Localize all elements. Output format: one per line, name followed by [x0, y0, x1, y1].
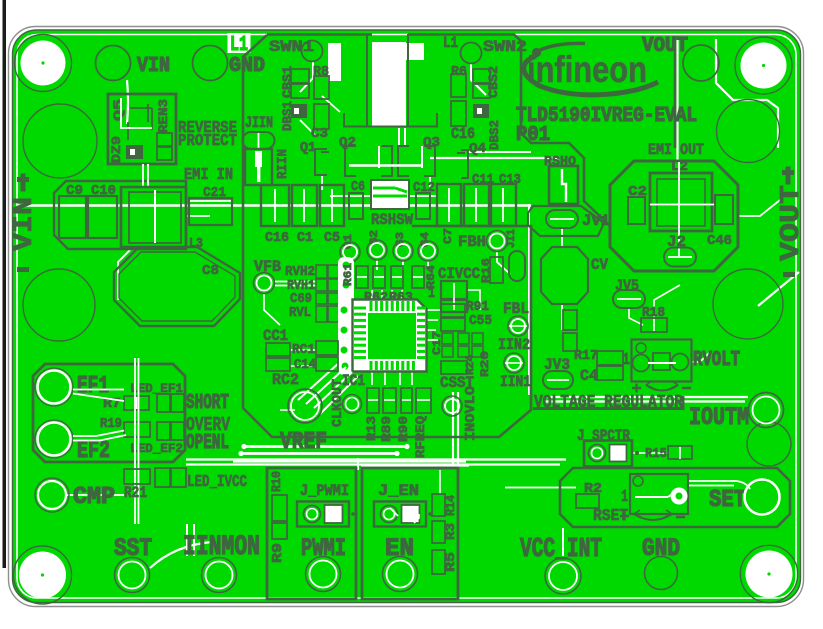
- svg-text:C7: C7: [443, 228, 455, 244]
- svg-text:L3: L3: [189, 236, 203, 252]
- svg-text:L1: L1: [443, 34, 458, 52]
- svg-text:Q4: Q4: [469, 141, 486, 157]
- svg-text:PWMI: PWMI: [301, 534, 346, 563]
- svg-text:R89: R89: [380, 416, 394, 442]
- svg-text:R14: R14: [444, 495, 458, 516]
- svg-text:DBS2: DBS2: [488, 120, 502, 150]
- svg-text:R20: R20: [480, 351, 492, 377]
- svg-text:Q5: Q5: [112, 99, 126, 121]
- svg-text:VOUT: VOUT: [776, 185, 806, 261]
- svg-text:Q1: Q1: [300, 140, 316, 156]
- svg-text:C16: C16: [451, 125, 475, 143]
- svg-text:VOUT: VOUT: [642, 35, 688, 58]
- svg-text:R16: R16: [481, 258, 493, 283]
- svg-text:RFREQ: RFREQ: [414, 416, 428, 458]
- svg-text:C5: C5: [324, 230, 340, 246]
- svg-text:1: 1: [622, 351, 630, 370]
- svg-text:J_EN: J_EN: [378, 482, 419, 500]
- svg-text:VIN: VIN: [137, 55, 170, 78]
- svg-text:RSHSW: RSHSW: [371, 211, 414, 229]
- svg-text:EF2: EF2: [77, 438, 110, 465]
- svg-text:EMI IN: EMI IN: [184, 166, 233, 185]
- svg-text:JI1: JI1: [506, 229, 518, 248]
- svg-text:INOVLO: INOVLO: [463, 386, 479, 441]
- svg-text:R13: R13: [365, 416, 379, 441]
- svg-text:R6: R6: [451, 64, 467, 80]
- svg-text:FBL: FBL: [503, 300, 529, 318]
- svg-text:R10: R10: [270, 471, 284, 492]
- svg-text:C8: C8: [202, 263, 219, 279]
- svg-text:VCC_INT: VCC_INT: [520, 534, 602, 564]
- svg-text:LED_IVCC: LED_IVCC: [187, 473, 247, 492]
- svg-text:R3: R3: [444, 523, 458, 540]
- svg-text:R61: R61: [343, 263, 355, 286]
- svg-text:VREF: VREF: [280, 429, 327, 456]
- svg-text:OPENL: OPENL: [186, 432, 229, 455]
- svg-text:JV5: JV5: [615, 277, 639, 295]
- svg-text:CV: CV: [591, 256, 609, 274]
- svg-text:infineon: infineon: [527, 49, 647, 90]
- svg-text:RC2: RC2: [272, 371, 299, 389]
- svg-text:C11: C11: [472, 172, 494, 188]
- svg-text:R9: R9: [270, 543, 286, 563]
- svg-text:C1: C1: [297, 230, 313, 246]
- svg-text:C4: C4: [580, 367, 598, 385]
- svg-text:Q3: Q3: [423, 135, 440, 151]
- svg-text:R15: R15: [645, 446, 667, 462]
- svg-text:J_PWMI: J_PWMI: [300, 482, 349, 500]
- svg-text:PROTECT: PROTECT: [178, 132, 237, 151]
- svg-text:SET: SET: [709, 487, 746, 514]
- svg-text:RIIN: RIIN: [275, 149, 291, 179]
- svg-text:SHORT: SHORT: [186, 392, 229, 415]
- svg-text:C16: C16: [265, 230, 289, 246]
- svg-text:C46: C46: [707, 233, 732, 249]
- svg-text:JIIN: JIIN: [245, 114, 273, 132]
- svg-text:IIN2: IIN2: [498, 336, 530, 354]
- svg-text:VIN: VIN: [9, 197, 39, 251]
- svg-text:R8: R8: [313, 64, 329, 80]
- svg-text:CMP: CMP: [73, 484, 115, 511]
- svg-text:C55: C55: [469, 313, 492, 329]
- svg-text:GND: GND: [229, 55, 265, 78]
- svg-text:P01: P01: [516, 124, 550, 147]
- svg-text:RVOLT: RVOLT: [693, 349, 740, 372]
- svg-text:C13: C13: [499, 172, 521, 188]
- svg-text:SWN1: SWN1: [269, 38, 314, 56]
- svg-text:CBS1: CBS1: [281, 66, 295, 98]
- svg-text:DZ9: DZ9: [110, 136, 124, 163]
- svg-text:RC1: RC1: [292, 342, 315, 358]
- svg-text:EMI OUT: EMI OUT: [648, 141, 704, 159]
- svg-text:FBH: FBH: [458, 233, 486, 251]
- svg-text:IOUTM: IOUTM: [689, 403, 749, 432]
- svg-text:R90: R90: [397, 416, 411, 442]
- svg-text:IIN1: IIN1: [500, 373, 531, 391]
- svg-text:R17: R17: [574, 348, 598, 364]
- svg-text:R19: R19: [100, 416, 122, 432]
- svg-text:1: 1: [428, 284, 435, 302]
- svg-text:CBS2: CBS2: [487, 66, 501, 98]
- svg-text:REN3: REN3: [157, 99, 171, 133]
- svg-text:RVL: RVL: [289, 305, 311, 321]
- svg-text:R21: R21: [124, 484, 147, 502]
- svg-text:Q2: Q2: [339, 135, 356, 151]
- svg-text:R5: R5: [444, 552, 458, 572]
- svg-text:SST: SST: [114, 534, 152, 563]
- svg-text:IC1: IC1: [342, 372, 365, 390]
- svg-text:1: 1: [621, 488, 628, 507]
- svg-text:GND: GND: [642, 534, 680, 563]
- svg-text:JV1: JV1: [582, 212, 610, 230]
